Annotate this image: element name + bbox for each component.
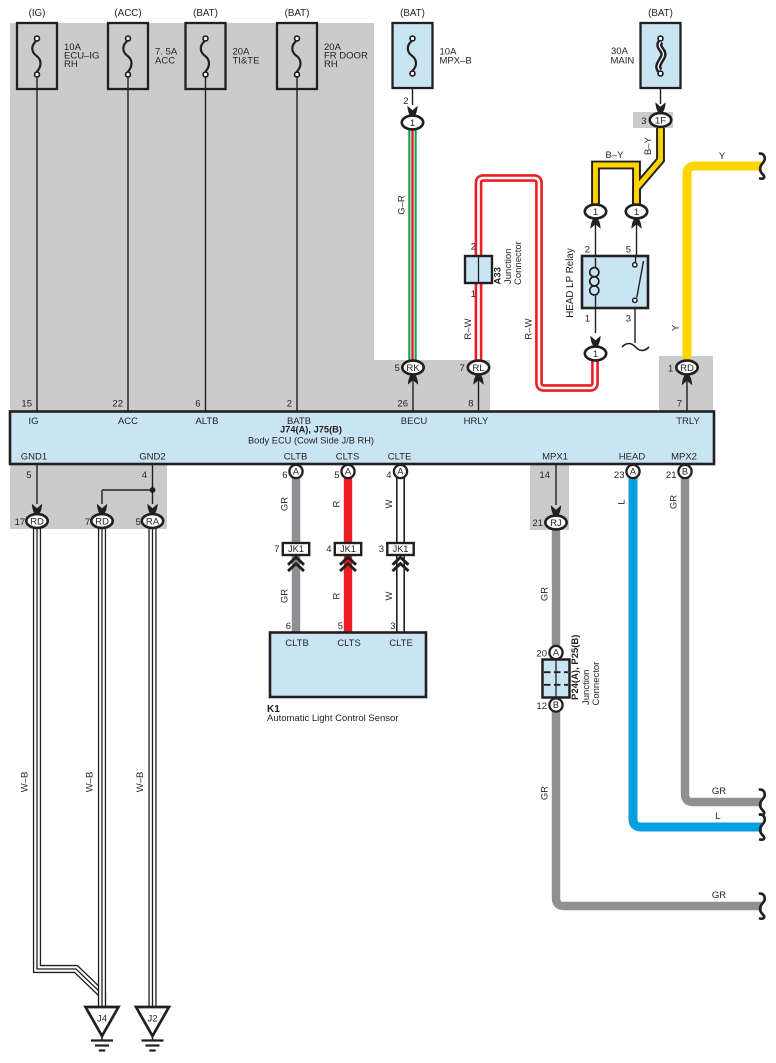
svg-text:14: 14 bbox=[539, 470, 550, 481]
svg-text:R: R bbox=[332, 500, 343, 507]
svg-text:5: 5 bbox=[334, 470, 339, 481]
svg-text:B–Y: B–Y bbox=[606, 150, 625, 161]
svg-text:R: R bbox=[332, 592, 343, 599]
svg-text:GR: GR bbox=[540, 786, 551, 800]
svg-text:7: 7 bbox=[85, 517, 90, 528]
svg-text:4: 4 bbox=[386, 470, 391, 481]
svg-text:CLTB: CLTB bbox=[284, 452, 308, 463]
svg-text:A: A bbox=[345, 467, 352, 477]
svg-text:1: 1 bbox=[410, 118, 415, 129]
svg-text:CLTS: CLTS bbox=[337, 638, 361, 649]
svg-text:GR: GR bbox=[669, 495, 680, 509]
svg-text:ACC: ACC bbox=[155, 56, 175, 67]
svg-text:HEAD LP Relay: HEAD LP Relay bbox=[565, 248, 576, 318]
svg-text:TI&TE: TI&TE bbox=[233, 56, 260, 67]
svg-text:R–W: R–W bbox=[463, 318, 474, 339]
svg-text:MAIN: MAIN bbox=[611, 55, 635, 66]
svg-text:2: 2 bbox=[403, 96, 408, 107]
svg-text:ACC: ACC bbox=[118, 416, 138, 427]
svg-text:3: 3 bbox=[390, 621, 395, 632]
svg-text:B–Y: B–Y bbox=[643, 136, 654, 155]
svg-text:21: 21 bbox=[532, 518, 543, 529]
svg-text:6: 6 bbox=[282, 470, 287, 481]
svg-text:GND1: GND1 bbox=[21, 452, 47, 463]
svg-text:2: 2 bbox=[287, 399, 292, 410]
svg-text:20: 20 bbox=[536, 649, 547, 660]
svg-text:A: A bbox=[293, 467, 300, 477]
svg-text:W–B: W–B bbox=[85, 772, 96, 793]
svg-text:5: 5 bbox=[626, 245, 631, 256]
svg-text:TRLY: TRLY bbox=[676, 416, 700, 427]
svg-text:MPX–B: MPX–B bbox=[440, 56, 472, 67]
svg-text:15: 15 bbox=[21, 399, 32, 410]
svg-text:B: B bbox=[682, 467, 688, 477]
svg-text:Y: Y bbox=[719, 151, 726, 162]
svg-text:2: 2 bbox=[471, 242, 476, 253]
svg-text:HRLY: HRLY bbox=[464, 416, 489, 427]
svg-text:3: 3 bbox=[379, 544, 384, 555]
svg-text:RD: RD bbox=[680, 363, 694, 374]
svg-text:RJ: RJ bbox=[550, 518, 562, 529]
svg-text:R–W: R–W bbox=[524, 318, 535, 339]
svg-text:5: 5 bbox=[338, 621, 343, 632]
svg-text:J2: J2 bbox=[147, 1014, 157, 1025]
svg-text:23: 23 bbox=[614, 470, 625, 481]
svg-text:(BAT): (BAT) bbox=[400, 8, 425, 19]
svg-text:W–B: W–B bbox=[135, 772, 146, 793]
svg-text:W: W bbox=[384, 499, 395, 508]
svg-text:7: 7 bbox=[677, 399, 682, 410]
svg-text:W–B: W–B bbox=[20, 772, 31, 793]
svg-text:CLTB: CLTB bbox=[285, 638, 309, 649]
svg-text:12: 12 bbox=[536, 701, 547, 712]
svg-text:HEAD: HEAD bbox=[619, 452, 646, 463]
svg-text:1: 1 bbox=[593, 349, 598, 360]
svg-text:CLTS: CLTS bbox=[336, 452, 360, 463]
svg-text:1: 1 bbox=[593, 207, 598, 218]
svg-text:GR: GR bbox=[280, 497, 291, 511]
svg-text:JK1: JK1 bbox=[288, 544, 304, 554]
svg-text:(BAT): (BAT) bbox=[285, 8, 310, 19]
svg-text:G–R: G–R bbox=[397, 195, 408, 215]
svg-text:JK1: JK1 bbox=[393, 544, 409, 554]
svg-text:RH: RH bbox=[324, 59, 338, 70]
svg-text:3: 3 bbox=[626, 314, 631, 325]
svg-text:Connector: Connector bbox=[591, 662, 602, 706]
svg-text:26: 26 bbox=[397, 399, 408, 410]
svg-text:RH: RH bbox=[64, 59, 78, 70]
svg-text:RD: RD bbox=[30, 516, 44, 527]
svg-text:A33: A33 bbox=[493, 267, 504, 284]
svg-text:6: 6 bbox=[286, 621, 291, 632]
svg-text:5: 5 bbox=[395, 363, 400, 374]
svg-text:A: A bbox=[553, 648, 560, 658]
svg-text:GR: GR bbox=[540, 587, 551, 601]
svg-text:A: A bbox=[630, 467, 637, 477]
svg-text:(ACC): (ACC) bbox=[114, 8, 141, 19]
svg-text:GND2: GND2 bbox=[139, 452, 165, 463]
svg-text:GR: GR bbox=[280, 589, 291, 603]
svg-text:Automatic Light Control Sensor: Automatic Light Control Sensor bbox=[267, 713, 398, 724]
svg-text:6: 6 bbox=[195, 399, 200, 410]
svg-text:MPX1: MPX1 bbox=[542, 452, 568, 463]
svg-text:MPX2: MPX2 bbox=[671, 452, 697, 463]
svg-text:5: 5 bbox=[26, 470, 31, 481]
svg-text:21: 21 bbox=[666, 470, 677, 481]
svg-text:3: 3 bbox=[641, 116, 646, 127]
svg-text:(IG): (IG) bbox=[29, 8, 46, 19]
svg-text:(BAT): (BAT) bbox=[193, 8, 218, 19]
svg-text:B: B bbox=[553, 700, 559, 710]
svg-text:BATB: BATB bbox=[287, 416, 311, 427]
svg-text:RL: RL bbox=[472, 363, 485, 374]
svg-text:Body ECU (Cowl Side J/B RH): Body ECU (Cowl Side J/B RH) bbox=[248, 436, 374, 446]
svg-text:5: 5 bbox=[136, 517, 141, 528]
svg-text:(BAT): (BAT) bbox=[648, 8, 673, 19]
svg-text:7: 7 bbox=[274, 544, 279, 555]
svg-text:CLTE: CLTE bbox=[388, 452, 412, 463]
svg-text:Y: Y bbox=[671, 324, 682, 331]
svg-text:17: 17 bbox=[15, 517, 26, 528]
svg-text:ALTB: ALTB bbox=[195, 416, 218, 427]
svg-text:1: 1 bbox=[585, 314, 590, 325]
svg-text:BECU: BECU bbox=[401, 416, 428, 427]
svg-text:1: 1 bbox=[668, 364, 673, 375]
svg-text:L: L bbox=[617, 499, 628, 504]
svg-text:L: L bbox=[715, 811, 720, 822]
svg-text:Connector: Connector bbox=[513, 241, 524, 285]
svg-text:RD: RD bbox=[95, 516, 109, 527]
svg-text:1: 1 bbox=[471, 289, 476, 300]
svg-text:A: A bbox=[397, 467, 404, 477]
svg-text:1F: 1F bbox=[655, 115, 666, 126]
svg-text:8: 8 bbox=[468, 399, 473, 410]
svg-text:4: 4 bbox=[142, 470, 147, 481]
svg-text:22: 22 bbox=[112, 399, 123, 410]
svg-text:1: 1 bbox=[634, 207, 639, 218]
svg-text:IG: IG bbox=[28, 416, 38, 427]
svg-text:4: 4 bbox=[326, 544, 331, 555]
svg-text:W: W bbox=[384, 591, 395, 600]
svg-text:J4: J4 bbox=[97, 1014, 107, 1025]
svg-text:JK1: JK1 bbox=[340, 544, 356, 554]
svg-text:RK: RK bbox=[406, 363, 420, 374]
svg-text:2: 2 bbox=[585, 245, 590, 256]
svg-text:CLTE: CLTE bbox=[389, 638, 413, 649]
svg-text:GR: GR bbox=[712, 786, 726, 797]
svg-text:GR: GR bbox=[712, 890, 726, 901]
svg-text:P24(A), P25(B): P24(A), P25(B) bbox=[570, 635, 581, 700]
svg-text:RA: RA bbox=[146, 516, 160, 527]
svg-text:7: 7 bbox=[460, 363, 465, 374]
